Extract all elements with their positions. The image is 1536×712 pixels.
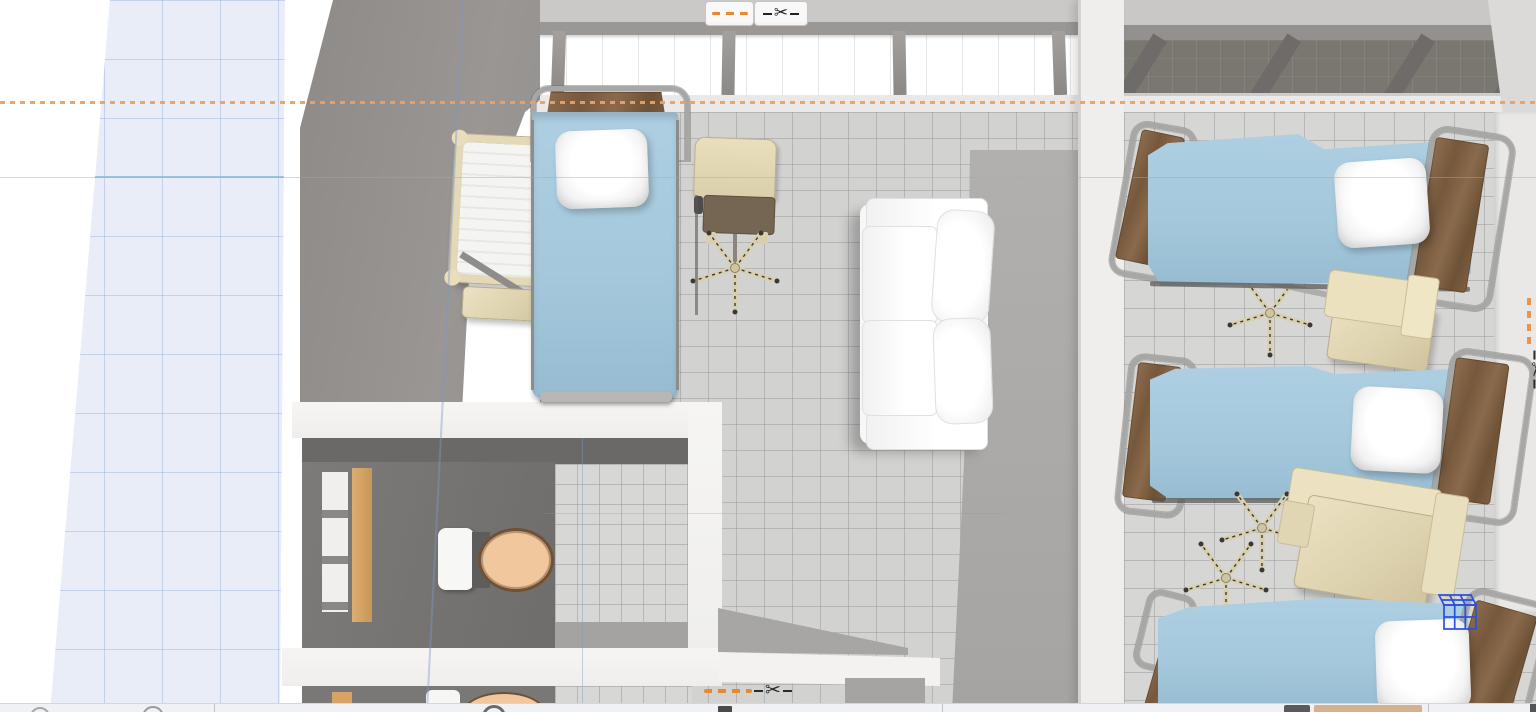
window-mullion <box>1052 31 1067 95</box>
sofa-seat-cushion <box>862 320 938 416</box>
scissors-glyph: ✂ <box>1525 362 1536 378</box>
window-header-beam <box>1124 25 1536 40</box>
wood-panel[interactable] <box>352 468 372 622</box>
desk-chair[interactable] <box>680 130 800 330</box>
guide-line-vertical <box>582 438 583 712</box>
bathroom-wall-bottom <box>282 648 722 686</box>
toolbar-separator <box>214 704 215 712</box>
sofa-back-cushion <box>930 208 996 326</box>
scissors-glyph: ✂ <box>774 5 788 22</box>
toolbar-separator <box>942 704 943 712</box>
window-mullion <box>721 31 735 95</box>
bathroom-wall-right <box>688 402 722 664</box>
3d-viewport[interactable]: ✂ ✂ ✂ <box>0 0 1536 712</box>
toolbar-separator <box>1428 704 1429 712</box>
bed-pillow <box>1333 157 1431 249</box>
toilet-seat-rim[interactable] <box>478 528 554 592</box>
sofa-back-cushion <box>932 317 994 425</box>
cut-plane-button[interactable]: ✂ <box>754 1 808 26</box>
guide-line-horizontal <box>0 177 1536 178</box>
window-glass-dark <box>1124 40 1536 96</box>
toolbar-swatch[interactable] <box>1314 705 1422 712</box>
clip-line-button[interactable] <box>705 1 754 26</box>
sofa-seat-cushion <box>862 226 938 324</box>
bed-pillow <box>1350 386 1444 475</box>
bathroom <box>282 402 722 712</box>
toolbar-block[interactable] <box>718 706 732 712</box>
door-frame-edge <box>695 195 698 315</box>
orange-dash-icon <box>712 12 748 15</box>
toolbar-block[interactable] <box>1284 705 1310 712</box>
scissors-icon: ✂ <box>763 5 799 22</box>
chair-backrest <box>693 137 777 202</box>
circle-button-icon[interactable] <box>482 705 506 712</box>
circle-button-icon[interactable] <box>142 706 164 712</box>
guide-line-horizontal <box>545 513 1005 514</box>
bed-pillow <box>555 128 650 209</box>
clip-line-marker-bottom[interactable] <box>704 689 752 693</box>
bathroom-inner-wall <box>302 438 692 464</box>
ground-grid-plane <box>46 0 286 712</box>
chair-star-base <box>685 218 785 318</box>
toolbar-block <box>1530 704 1536 712</box>
cut-plane-marker-bottom[interactable]: ✂ <box>754 681 792 700</box>
hospital-bed-center[interactable] <box>525 84 690 414</box>
hospital-bed-1[interactable] <box>1110 118 1510 308</box>
shelf-unit[interactable] <box>322 472 348 612</box>
selection-wireframe-box <box>1432 592 1478 636</box>
bed-foot-bar <box>540 392 672 402</box>
ceiling-strip <box>1124 0 1536 27</box>
scissors-glyph: ✂ <box>765 681 781 700</box>
bottom-toolbar-strip <box>0 703 1536 712</box>
circle-button-icon[interactable] <box>30 707 50 712</box>
bed-side-rail <box>531 120 534 390</box>
bed-side-rail <box>676 120 679 390</box>
clip-line-marker-right[interactable] <box>1527 298 1531 348</box>
sofa[interactable] <box>856 196 994 450</box>
toilet-tank[interactable] <box>438 528 474 590</box>
bathroom-floor <box>555 464 692 626</box>
cut-plane-marker-right[interactable]: ✂ <box>1525 351 1536 389</box>
clip-plane-line[interactable] <box>0 101 1536 104</box>
window-mullion <box>892 31 906 95</box>
